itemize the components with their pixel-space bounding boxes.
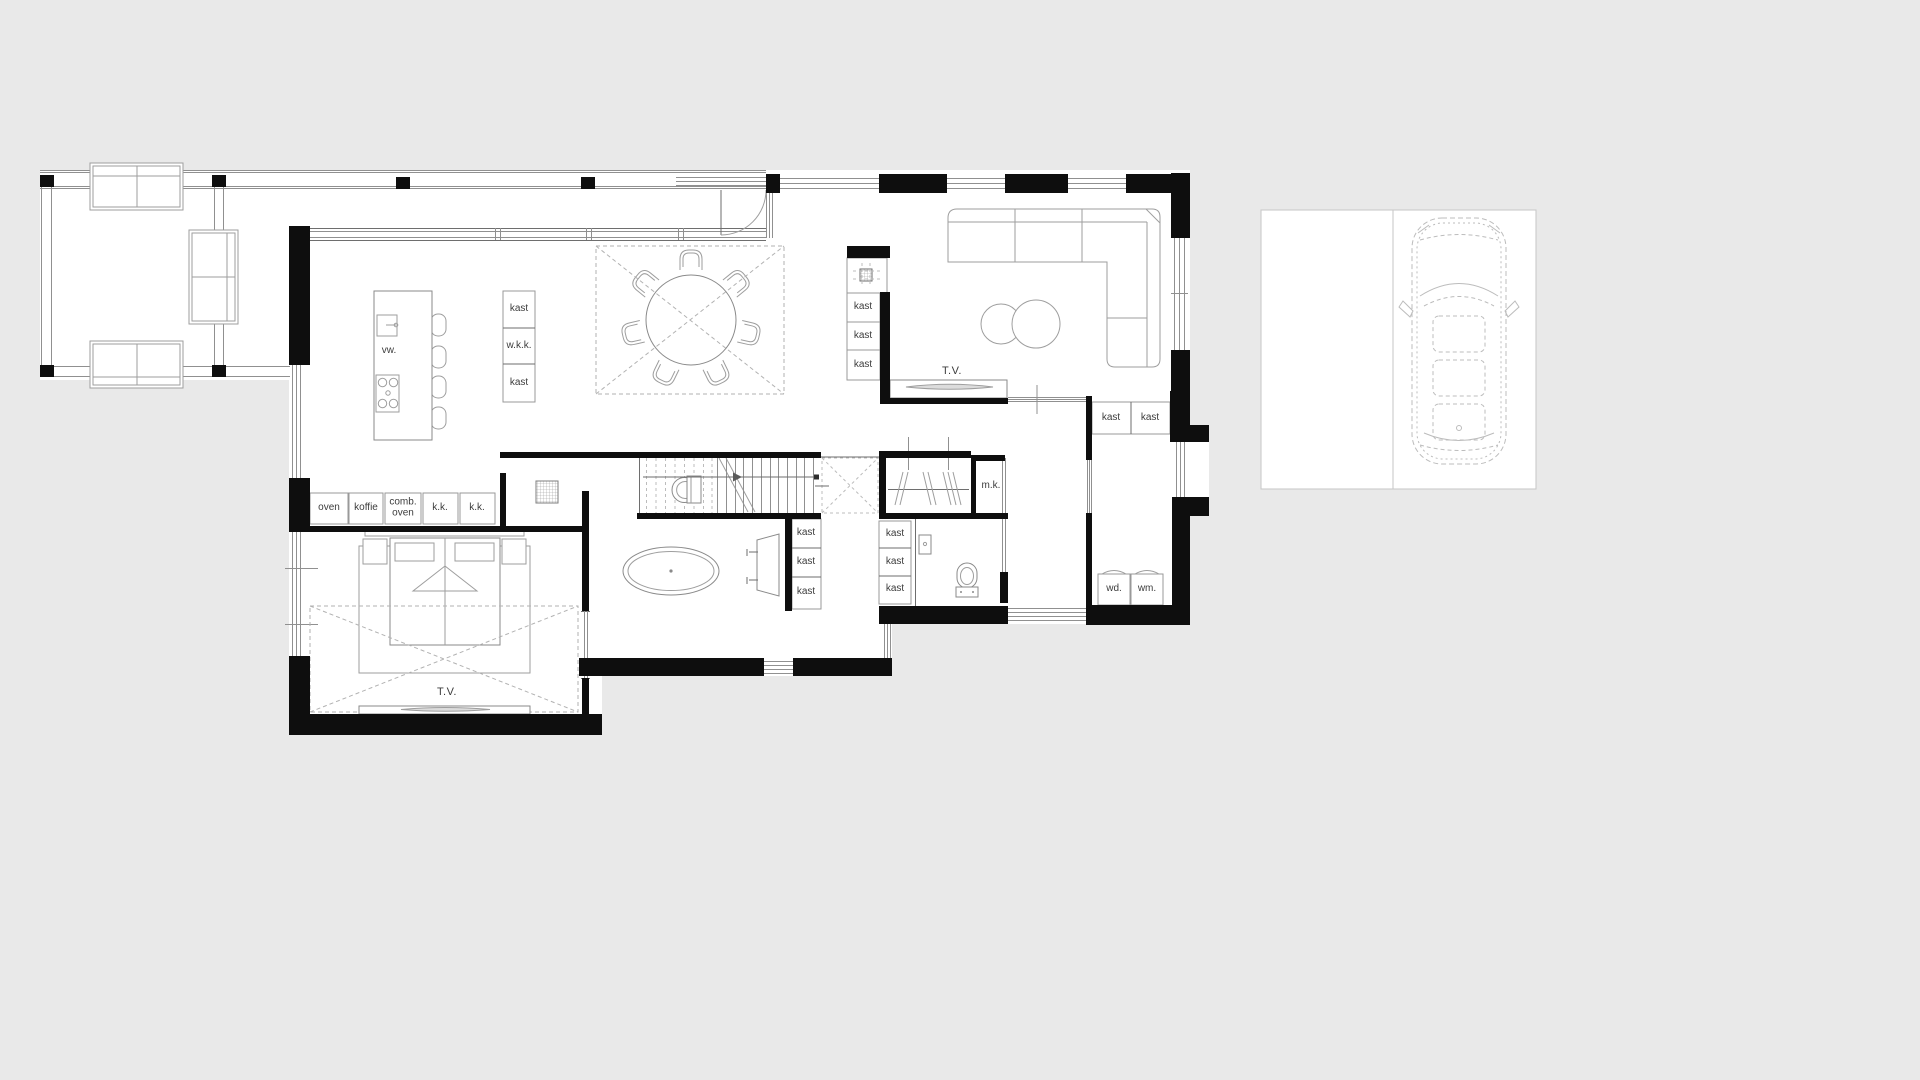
label-meter-closet: m.k. xyxy=(982,481,1001,492)
tv-cabinet-bedroom xyxy=(359,706,530,714)
label-wc-closet: kast xyxy=(886,529,904,540)
label-appliance-comb-oven: comb. oven xyxy=(385,498,422,519)
label-wc-closet: kast xyxy=(886,557,904,568)
label-bathroom-closet: kast xyxy=(797,587,815,598)
bathtub xyxy=(623,547,719,595)
doormat-icon xyxy=(536,481,558,503)
wc-basin xyxy=(919,535,931,554)
label-appliance-kk: k.k. xyxy=(469,503,485,514)
label-kitchen-cabinet: w.k.k. xyxy=(506,341,531,352)
label-appliance-koffie: koffie xyxy=(354,503,378,514)
label-wc-closet: kast xyxy=(886,584,904,595)
label-fireplace-cabinet: kast xyxy=(854,331,872,342)
label-tv-living: T.V. xyxy=(942,366,962,378)
outdoor-sofa-bottom xyxy=(90,341,183,388)
floor-plan-drawing xyxy=(0,0,1920,1080)
label-fireplace-cabinet: kast xyxy=(854,302,872,313)
label-dryer: wd. xyxy=(1106,584,1122,595)
label-tv-bedroom: T.V. xyxy=(437,687,457,699)
label-hall-closet: kast xyxy=(1102,413,1120,424)
outdoor-sofa-top xyxy=(90,163,183,210)
label-kitchen-cabinet: kast xyxy=(510,304,528,315)
label-bathroom-closet: kast xyxy=(797,557,815,568)
stair-toilet xyxy=(672,476,701,503)
label-kitchen-cabinet: kast xyxy=(510,378,528,389)
label-appliance-kk: k.k. xyxy=(432,503,448,514)
label-hall-closet: kast xyxy=(1141,413,1159,424)
label-washer: wm. xyxy=(1138,584,1156,595)
floor-plan-screenshot: vw. kast w.k.k. kast oven koffie comb. o… xyxy=(0,0,1920,1080)
label-appliance-oven: oven xyxy=(318,503,340,514)
outdoor-sofa-right xyxy=(189,230,238,324)
label-fireplace-cabinet: kast xyxy=(854,360,872,371)
wc-toilet xyxy=(956,563,978,597)
side-tables xyxy=(981,300,1060,348)
bed xyxy=(390,538,500,645)
garage-panel xyxy=(1261,210,1536,489)
tv-shelf-living xyxy=(890,380,1007,398)
dining-table xyxy=(646,275,736,365)
label-bathroom-closet: kast xyxy=(797,528,815,539)
label-dishwasher: vw. xyxy=(382,346,396,357)
